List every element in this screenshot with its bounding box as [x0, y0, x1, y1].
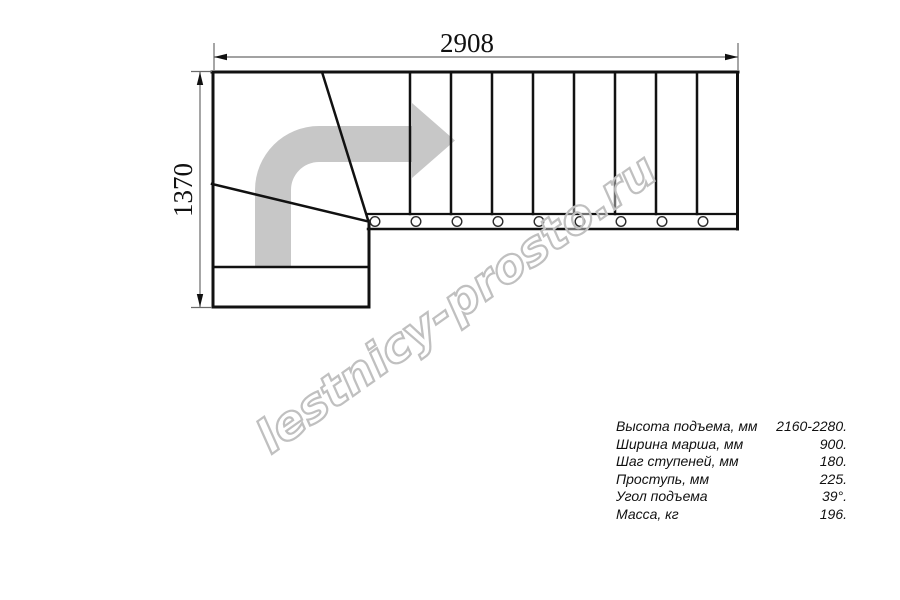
specs-table: Высота подъема, мм 2160-2280. Ширина мар… [616, 418, 847, 524]
spec-row-step-pitch: Шаг ступеней, мм 180. [616, 453, 847, 471]
spec-row-flight-width: Ширина марша, мм 900. [616, 436, 847, 454]
spec-value: 900. [820, 436, 847, 454]
baluster-marker [657, 217, 667, 227]
spec-value: 196. [820, 506, 847, 524]
spec-label: Масса, кг [616, 506, 679, 524]
baluster-marker [370, 217, 380, 227]
dimension-arrow-left [214, 54, 227, 60]
spec-label: Шаг ступеней, мм [616, 453, 739, 471]
spec-label: Проступь, мм [616, 471, 709, 489]
spec-label: Ширина марша, мм [616, 436, 743, 454]
spec-value: 39°. [822, 488, 847, 506]
spec-row-climb-angle: Угол подъема 39°. [616, 488, 847, 506]
diagram-canvas: 2908 1370 lestnicy-prosto.ru Высота подъ… [0, 0, 900, 600]
direction-arrow [255, 103, 455, 267]
spec-value: 2160-2280. [776, 418, 847, 436]
dimension-width-label: 2908 [440, 28, 494, 58]
watermark: lestnicy-prosto.ru [246, 142, 667, 464]
direction-arrow-shape [255, 103, 455, 267]
dimension-height-label: 1370 [168, 163, 198, 217]
spec-value: 180. [820, 453, 847, 471]
watermark-text: lestnicy-prosto.ru [246, 142, 667, 464]
spec-label: Угол подъема [616, 488, 708, 506]
baluster-marker [452, 217, 462, 227]
dimension-arrow-right [725, 54, 738, 60]
spec-value: 225. [820, 471, 847, 489]
dimension-arrow-top [197, 72, 203, 85]
dimension-arrow-bottom [197, 294, 203, 307]
dimension-width: 2908 [214, 28, 738, 70]
spec-label: Высота подъема, мм [616, 418, 758, 436]
dimension-height: 1370 [168, 72, 212, 308]
baluster-marker [493, 217, 503, 227]
baluster-marker [698, 217, 708, 227]
spec-row-rise-height: Высота подъема, мм 2160-2280. [616, 418, 847, 436]
baluster-marker [411, 217, 421, 227]
spec-row-tread-depth: Проступь, мм 225. [616, 471, 847, 489]
spec-row-mass: Масса, кг 196. [616, 506, 847, 524]
